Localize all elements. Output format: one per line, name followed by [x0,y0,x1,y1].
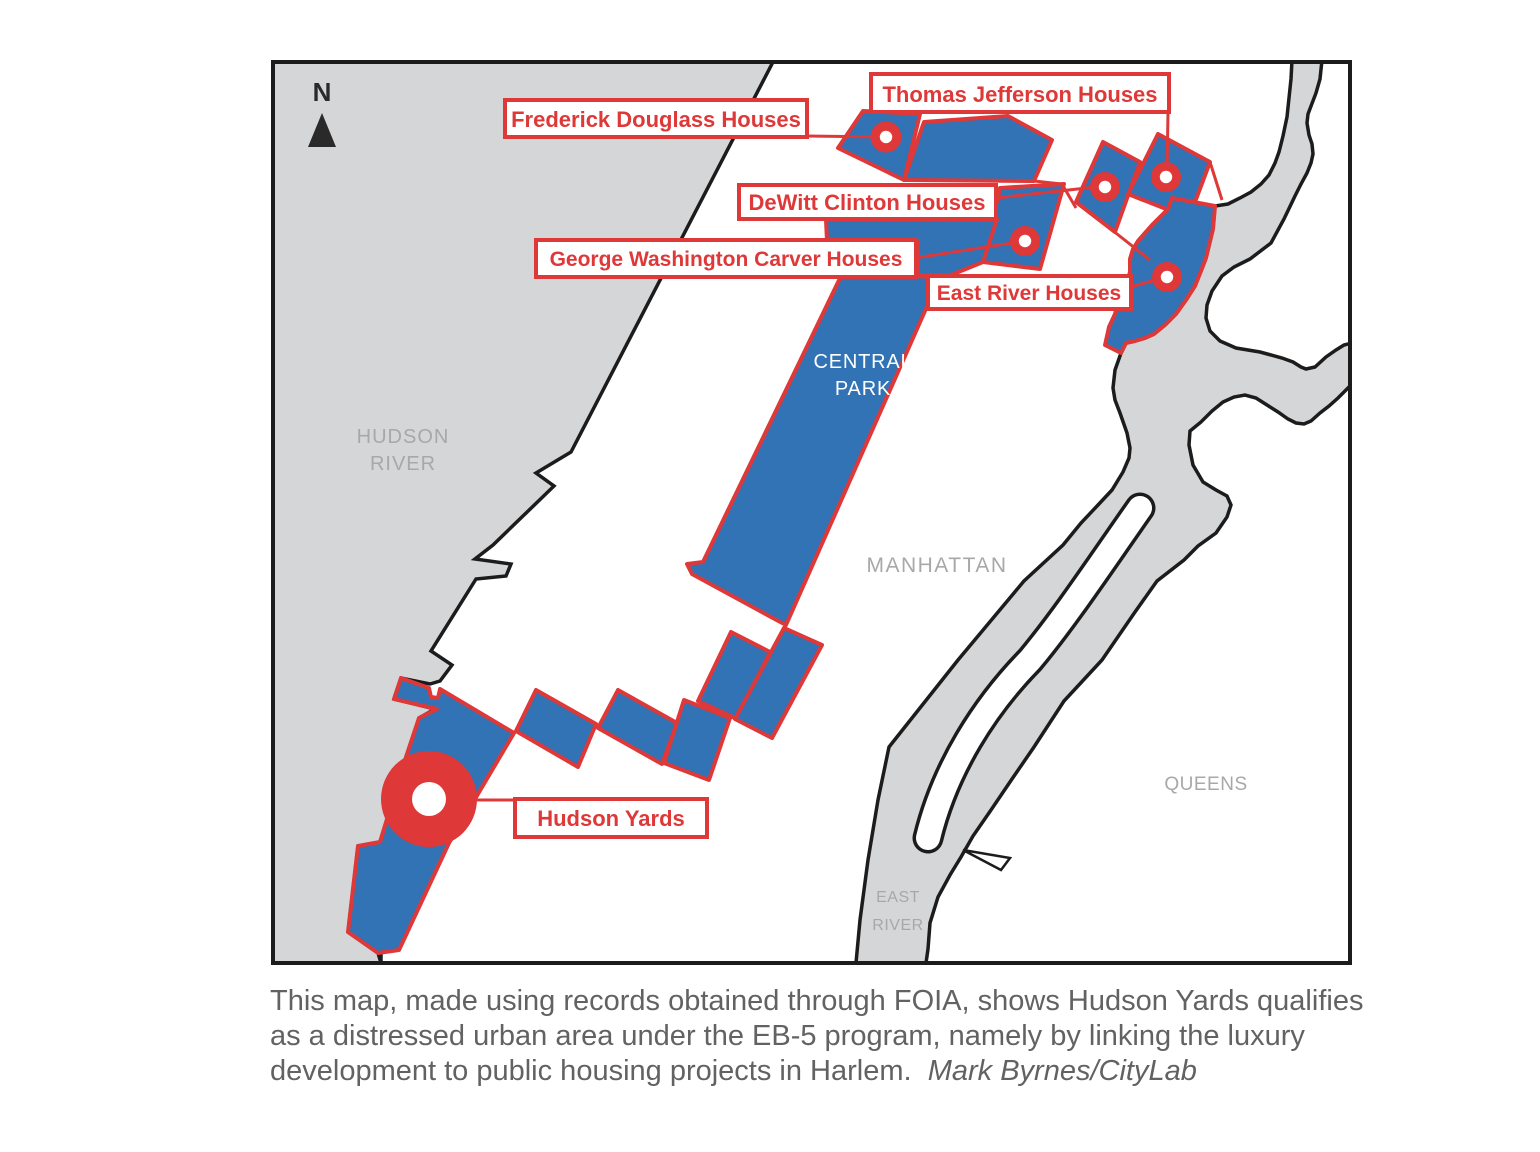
svg-text:QUEENS: QUEENS [1164,774,1247,795]
svg-text:RIVER: RIVER [872,917,923,934]
svg-text:PARK: PARK [835,378,891,400]
svg-text:CENTRAL: CENTRAL [814,351,913,373]
svg-text:Thomas Jefferson Houses: Thomas Jefferson Houses [882,82,1157,107]
svg-text:MANHATTAN: MANHATTAN [866,554,1007,577]
svg-text:Frederick Douglass Houses: Frederick Douglass Houses [511,107,801,132]
svg-text:EAST: EAST [876,889,920,906]
svg-text:N: N [313,77,332,107]
svg-text:George Washington Carver House: George Washington Carver Houses [550,248,903,271]
svg-text:RIVER: RIVER [370,453,436,475]
svg-text:Hudson Yards: Hudson Yards [537,806,685,831]
svg-text:East River Houses: East River Houses [937,282,1121,305]
svg-text:HUDSON: HUDSON [357,426,450,448]
svg-text:DeWitt Clinton Houses: DeWitt Clinton Houses [749,190,986,215]
